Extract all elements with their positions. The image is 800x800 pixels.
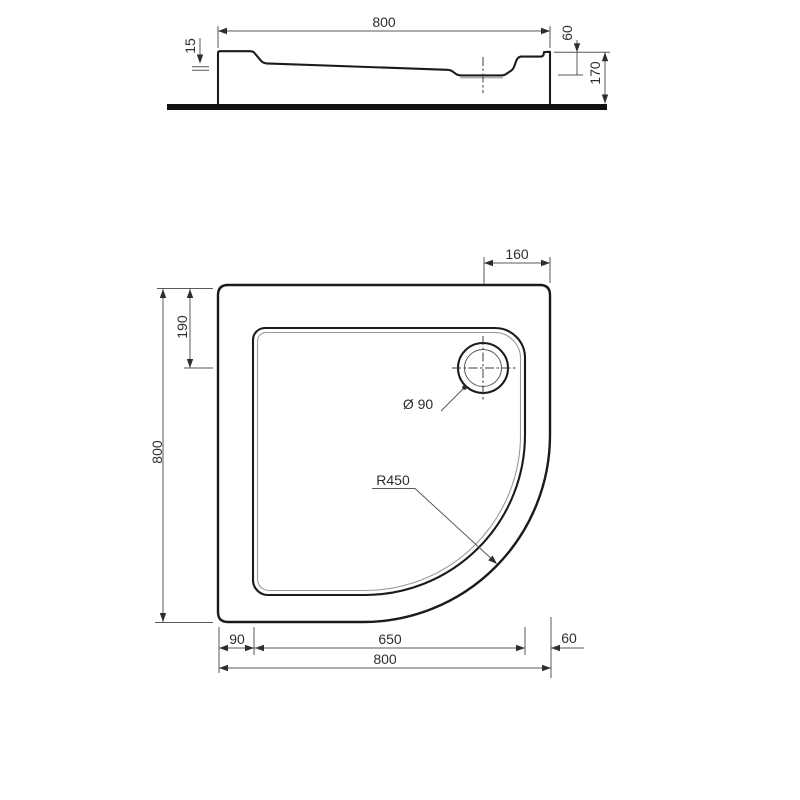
arrow-up-icon bbox=[602, 52, 608, 61]
drawing-canvas: 800 15 60 170 bbox=[0, 0, 800, 800]
dim-label: 190 bbox=[174, 315, 190, 339]
floor-line bbox=[167, 104, 607, 110]
dim-overall-width-top: 800 bbox=[218, 14, 550, 48]
dim-label: 160 bbox=[505, 246, 529, 262]
arrow-right-icon bbox=[541, 260, 550, 266]
arrow-left-icon bbox=[218, 28, 227, 34]
drain bbox=[452, 336, 516, 402]
dim-label: 90 bbox=[229, 631, 245, 647]
arrow-left-icon bbox=[484, 260, 493, 266]
dim-label: 60 bbox=[561, 630, 577, 646]
arrow-right-icon bbox=[541, 28, 550, 34]
arrow-down-icon bbox=[197, 55, 203, 64]
dim-label: Ø 90 bbox=[403, 396, 434, 412]
technical-drawing-shower-tray: 800 15 60 170 bbox=[0, 0, 800, 800]
dim-label: 15 bbox=[182, 38, 198, 54]
dim-overall-height: 170 bbox=[587, 52, 608, 103]
arrow-right-icon bbox=[516, 645, 525, 651]
dim-right-rim: 60 bbox=[551, 630, 584, 651]
dim-front-radius: R450 bbox=[372, 472, 497, 564]
arrow-left-icon bbox=[219, 645, 228, 651]
arrow-up-icon bbox=[187, 289, 193, 298]
dim-rim-step: 15 bbox=[182, 38, 209, 70]
dim-label: R450 bbox=[376, 472, 410, 488]
plan-view: 160 190 800 Ø 90 R450 bbox=[149, 246, 584, 678]
dim-label: 170 bbox=[587, 61, 603, 85]
side-elevation-view: 800 15 60 170 bbox=[167, 14, 610, 110]
outer-outline bbox=[218, 285, 550, 622]
arrow-down-icon bbox=[574, 43, 580, 52]
arrow-down-icon bbox=[160, 613, 166, 622]
arrow-down-icon bbox=[187, 359, 193, 368]
arrow-left-icon bbox=[255, 645, 264, 651]
recess-slope-line bbox=[258, 332, 521, 590]
dim-label: 800 bbox=[373, 651, 397, 667]
dim-drain-offset-top: 190 bbox=[157, 289, 213, 369]
dim-label: 60 bbox=[559, 25, 575, 41]
arrow-left-icon bbox=[551, 645, 560, 651]
dim-overall-width-bottom: 800 bbox=[219, 651, 551, 671]
arrow-right-icon bbox=[542, 665, 551, 671]
dim-drain-diameter: Ø 90 bbox=[403, 385, 467, 412]
leader-dot bbox=[462, 385, 467, 390]
arrow-left-icon bbox=[219, 665, 228, 671]
inner-recess-outline bbox=[253, 328, 525, 595]
arrow-up-icon bbox=[160, 289, 166, 298]
dim-label: 800 bbox=[372, 14, 396, 30]
arrow-right-icon bbox=[245, 645, 254, 651]
dim-left-rim: 90 bbox=[219, 631, 254, 651]
dim-drain-offset-right: 160 bbox=[484, 246, 550, 284]
dim-label: 800 bbox=[149, 440, 165, 464]
arrow-down-icon bbox=[602, 95, 608, 104]
dim-basin-width: 650 bbox=[254, 631, 525, 651]
dim-bottom-rows: 90 650 60 800 bbox=[219, 617, 584, 678]
dim-label: 650 bbox=[378, 631, 402, 647]
